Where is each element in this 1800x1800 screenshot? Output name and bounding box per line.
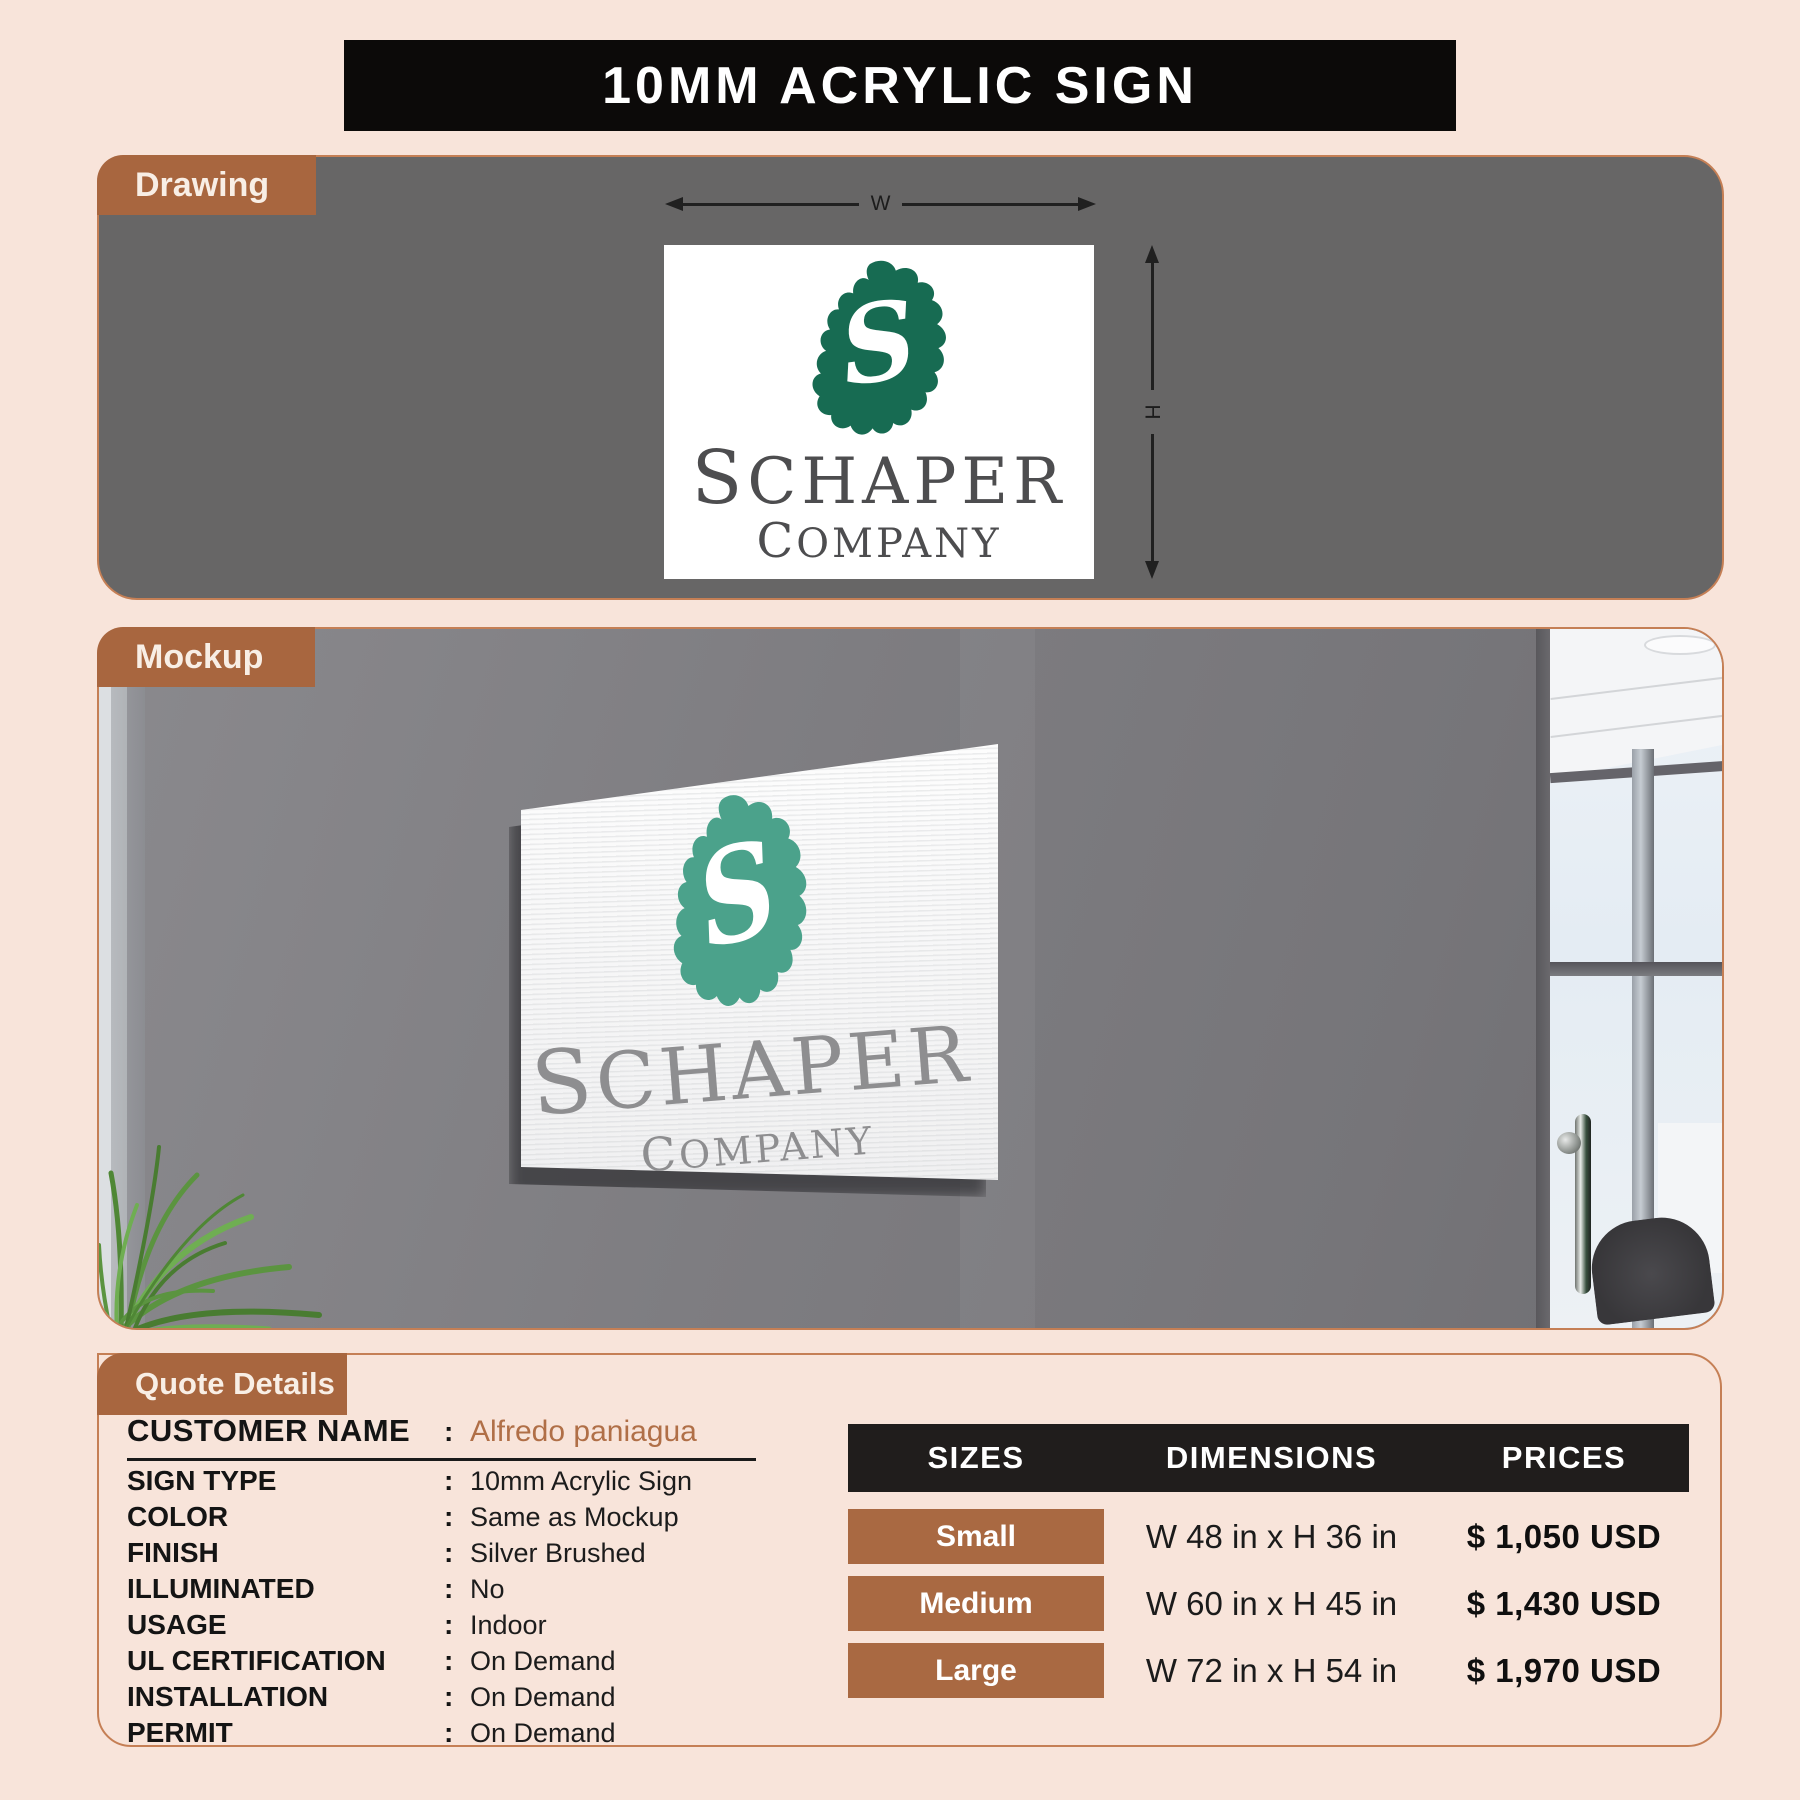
customer-underline: [127, 1458, 756, 1461]
company-logo: S SCHAPER COMPANY: [492, 776, 997, 1188]
detail-row-illuminated: ILLUMINATED : No: [127, 1573, 827, 1609]
arrow-right-icon: [1078, 197, 1096, 211]
dimensions-small: W 48 in x H 36 in: [1104, 1518, 1439, 1556]
drawing-panel: W H S SCHAPER COMPANY: [97, 155, 1724, 600]
detail-row-ul-certification: UL CERTIFICATION : On Demand: [127, 1645, 827, 1681]
mockup-section-tab: Mockup: [97, 627, 315, 687]
logo-blob-icon: S: [808, 260, 950, 439]
mockup-panel: S SCHAPER COMPANY: [97, 627, 1724, 1330]
size-button-small[interactable]: Small: [848, 1509, 1104, 1564]
height-dimension-label: H: [1130, 404, 1174, 419]
table-header: SIZES DIMENSIONS PRICES: [848, 1424, 1689, 1492]
drawing-section-tab: Drawing: [97, 155, 316, 215]
window-mullion-horizontal: [1550, 962, 1724, 976]
size-button-large[interactable]: Large: [848, 1643, 1104, 1698]
plant: [97, 1077, 343, 1330]
width-dimension-arrow: W: [665, 193, 1096, 215]
detail-row-installation: INSTALLATION : On Demand: [127, 1681, 827, 1717]
quote-details-section-tab: Quote Details: [97, 1353, 347, 1415]
arrow-down-icon: [1145, 561, 1159, 579]
detail-row-sign-type: SIGN TYPE : 10mm Acrylic Sign: [127, 1465, 827, 1501]
door-handle-knob: [1557, 1132, 1581, 1154]
price-large: $ 1,970 USD: [1439, 1652, 1689, 1690]
logo-company-name: SCHAPER: [528, 1007, 974, 1129]
logo-company-name: SCHAPER: [664, 441, 1094, 515]
width-dimension-label: W: [859, 192, 903, 216]
detail-row-finish: FINISH : Silver Brushed: [127, 1537, 827, 1573]
ceiling-vent: [1644, 635, 1716, 655]
customer-name-label: CUSTOMER NAME: [127, 1413, 444, 1449]
dimensions-large: W 72 in x H 54 in: [1104, 1652, 1439, 1690]
price-small: $ 1,050 USD: [1439, 1518, 1689, 1556]
dimensions-medium: W 60 in x H 45 in: [1104, 1585, 1439, 1623]
price-medium: $ 1,430 USD: [1439, 1585, 1689, 1623]
height-dimension-arrow: H: [1141, 245, 1163, 579]
office-chair: [1592, 1219, 1718, 1330]
sign-artwork: S SCHAPER COMPANY: [664, 245, 1094, 579]
logo-company-subtitle: COMPANY: [664, 517, 1094, 565]
detail-row-usage: USAGE : Indoor: [127, 1609, 827, 1645]
arrow-left-icon: [665, 197, 683, 211]
table-row-small: Small W 48 in x H 36 in $ 1,050 USD: [848, 1509, 1689, 1564]
header-sizes: SIZES: [848, 1440, 1104, 1476]
customer-name-row: CUSTOMER NAME : Alfredo paniagua: [127, 1413, 697, 1449]
header-prices: PRICES: [1439, 1440, 1689, 1476]
mockup-sign: S SCHAPER COMPANY: [521, 744, 998, 1180]
page-title: 10MM ACRYLIC SIGN: [344, 40, 1456, 131]
quote-details-list: SIGN TYPE : 10mm Acrylic Sign COLOR : Sa…: [127, 1465, 827, 1753]
office-view: [1536, 629, 1724, 1328]
arrow-up-icon: [1145, 245, 1159, 263]
quote-sheet: 10MM ACRYLIC SIGN W H S SCHAPER COMPANY: [0, 0, 1800, 1800]
detail-row-color: COLOR : Same as Mockup: [127, 1501, 827, 1537]
table-row-medium: Medium W 60 in x H 45 in $ 1,430 USD: [848, 1576, 1689, 1631]
detail-row-permit: PERMIT : On Demand: [127, 1717, 827, 1753]
glass-door-frame: [1536, 629, 1550, 1328]
table-row-large: Large W 72 in x H 54 in $ 1,970 USD: [848, 1643, 1689, 1698]
sizes-prices-table: SIZES DIMENSIONS PRICES Small W 48 in x …: [848, 1424, 1689, 1698]
logo-blob-icon: S: [657, 789, 819, 1016]
header-dimensions: DIMENSIONS: [1104, 1440, 1439, 1476]
logo-company-subtitle: COMPANY: [639, 1114, 876, 1178]
size-button-medium[interactable]: Medium: [848, 1576, 1104, 1631]
customer-name-value: Alfredo paniagua: [470, 1415, 697, 1449]
